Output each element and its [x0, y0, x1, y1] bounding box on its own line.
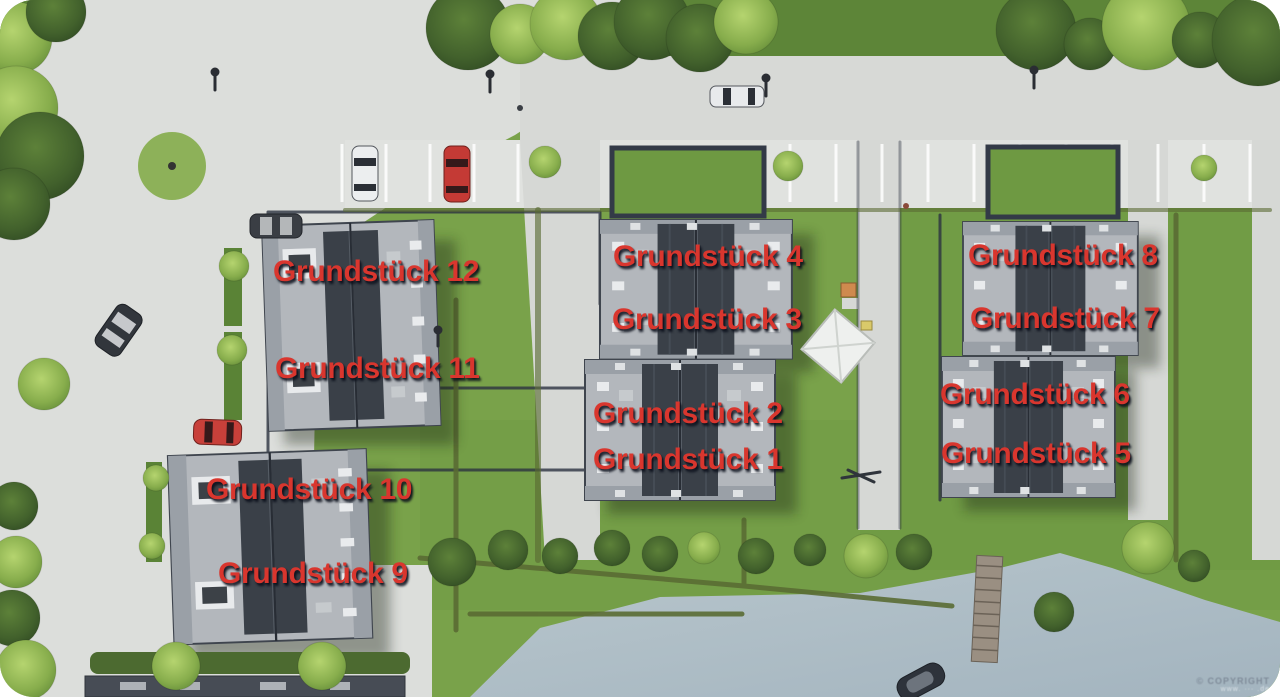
main-road [520, 56, 1280, 140]
site-plan-scene [0, 0, 1280, 697]
building-plots-6-5 [942, 357, 1115, 497]
building-plots-12-11 [262, 220, 441, 431]
car-dark-plaza [250, 214, 302, 238]
person-dot [517, 105, 523, 111]
building-plots-10-9 [168, 449, 372, 644]
building-plots-8-7 [963, 222, 1138, 355]
dock [971, 555, 1003, 662]
path-far-right [1252, 140, 1280, 560]
car-white-parked [352, 146, 378, 201]
car-on-road [710, 86, 764, 107]
building-plots-4-3 [600, 220, 792, 359]
car-red-parked [444, 146, 470, 202]
site-plan-image: Grundstück 12Grundstück 11Grundstück 10G… [0, 0, 1280, 697]
car-red-front [193, 419, 242, 446]
building-plots-2-1 [585, 360, 775, 500]
person-dot [903, 203, 909, 209]
page: Grundstück 12Grundstück 11Grundstück 10G… [0, 0, 1280, 697]
